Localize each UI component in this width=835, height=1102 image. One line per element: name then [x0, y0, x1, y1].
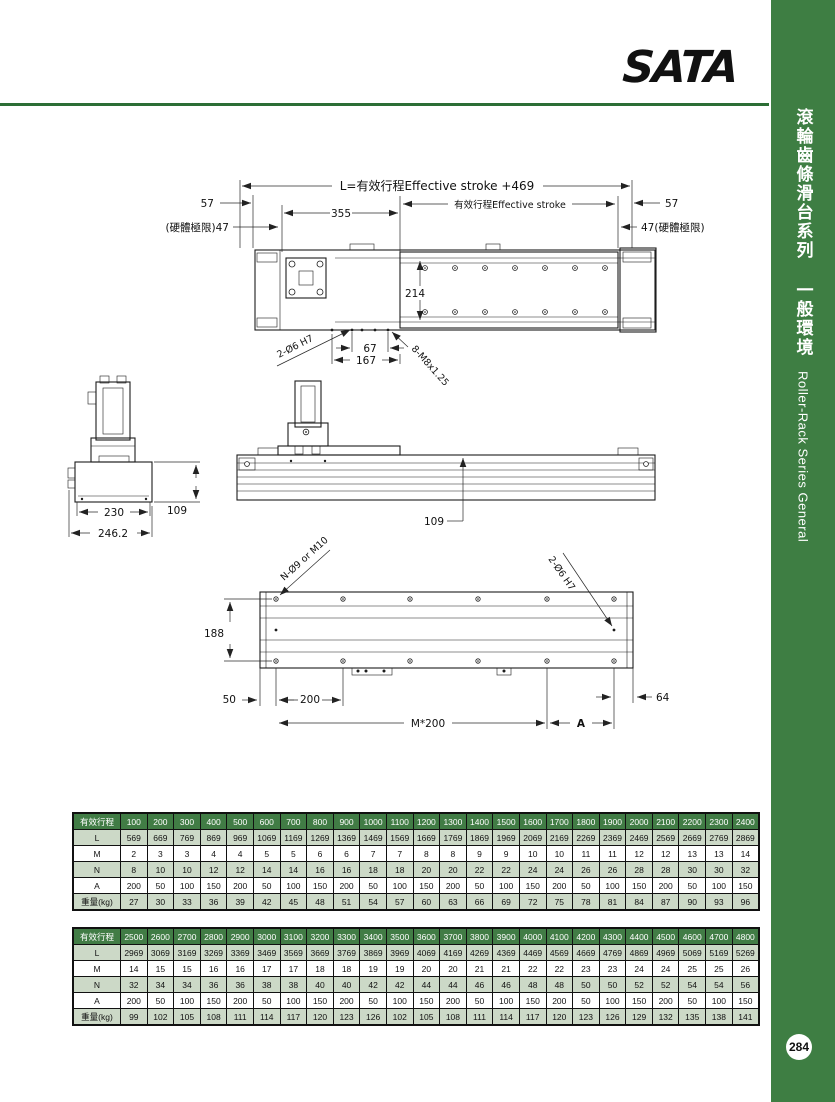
- stroke-header-cell: 600: [253, 813, 280, 830]
- stroke-header-cell: 1500: [493, 813, 520, 830]
- table-cell: 4769: [599, 945, 626, 961]
- table-cell: 12: [652, 846, 679, 862]
- table-cell: 72: [519, 894, 546, 911]
- table-cell: 38: [253, 977, 280, 993]
- table-cell: 90: [679, 894, 706, 911]
- table-cell: 9: [466, 846, 493, 862]
- sata-logo-text: SATA: [621, 42, 739, 93]
- table-cell: 21: [493, 961, 520, 977]
- table-cell: 10: [147, 862, 174, 878]
- stroke-header-cell: 1800: [573, 813, 600, 830]
- table-cell: 6: [307, 846, 334, 862]
- stroke-header-cell: 2200: [679, 813, 706, 830]
- table-cell: 123: [573, 1009, 600, 1026]
- table-cell: 200: [652, 993, 679, 1009]
- table-cell: 46: [493, 977, 520, 993]
- table-cell: 50: [360, 878, 387, 894]
- table-cell: 8: [440, 846, 467, 862]
- table-cell: 50: [573, 977, 600, 993]
- table-cell: 4169: [440, 945, 467, 961]
- table-cell: 150: [200, 993, 227, 1009]
- table-row: L569669769869969106911691269136914691569…: [73, 830, 759, 846]
- stroke-header-cell: 3100: [280, 928, 307, 945]
- table-cell: 3269: [200, 945, 227, 961]
- dim-label-109-side: 109: [424, 516, 444, 528]
- table-cell: 150: [732, 993, 759, 1009]
- table-cell: 24: [546, 862, 573, 878]
- table-cell: 150: [519, 993, 546, 1009]
- table-cell: 100: [280, 878, 307, 894]
- table-cell: 3169: [174, 945, 201, 961]
- table-cell: 5169: [706, 945, 733, 961]
- table-cell: 50: [679, 878, 706, 894]
- table-cell: 40: [307, 977, 334, 993]
- table-cell: 102: [147, 1009, 174, 1026]
- table-cell: 17: [253, 961, 280, 977]
- row-label: N: [73, 862, 121, 878]
- stroke-header-cell: 2400: [732, 813, 759, 830]
- table-cell: 108: [440, 1009, 467, 1026]
- table-cell: 24: [519, 862, 546, 878]
- dim-label-64: 64: [656, 692, 670, 704]
- table-cell: 2069: [519, 830, 546, 846]
- table-row: 有效行程100200300400500600700800900100011001…: [73, 813, 759, 830]
- table-cell: 22: [466, 862, 493, 878]
- sidebar-title-gap: [802, 357, 803, 371]
- table-cell: 2369: [599, 830, 626, 846]
- label-mount-holes: N-Ø9 or M10: [279, 535, 331, 583]
- table-cell: 42: [386, 977, 413, 993]
- table-cell: 22: [493, 862, 520, 878]
- stroke-header-cell: 500: [227, 813, 254, 830]
- table-cell: 1069: [253, 830, 280, 846]
- table-cell: 2969: [121, 945, 148, 961]
- table-row: A200501001502005010015020050100150200501…: [73, 878, 759, 894]
- table-cell: 200: [227, 878, 254, 894]
- table-cell: 8: [121, 862, 148, 878]
- row-label: A: [73, 878, 121, 894]
- stroke-header-cell: 1300: [440, 813, 467, 830]
- row-label: 重量(kg): [73, 1009, 121, 1026]
- table-cell: 117: [519, 1009, 546, 1026]
- stroke-header-cell: 1200: [413, 813, 440, 830]
- table-cell: 40: [333, 977, 360, 993]
- table-cell: 30: [147, 894, 174, 911]
- table-cell: 24: [626, 961, 653, 977]
- table-cell: 30: [706, 862, 733, 878]
- dim-label-214: 214: [405, 288, 425, 300]
- table-cell: 5: [253, 846, 280, 862]
- table-cell: 50: [253, 878, 280, 894]
- table-cell: 50: [679, 993, 706, 1009]
- table-cell: 3569: [280, 945, 307, 961]
- table-cell: 150: [307, 878, 334, 894]
- table-cell: 150: [307, 993, 334, 1009]
- table-cell: 33: [174, 894, 201, 911]
- table-cell: 114: [253, 1009, 280, 1026]
- table-cell: 23: [573, 961, 600, 977]
- table-cell: 20: [413, 862, 440, 878]
- dim-label-effective-stroke: 有效行程Effective stroke: [454, 199, 566, 211]
- table-cell: 16: [227, 961, 254, 977]
- label-pin-holes-plan: 2-Ø6 H7: [275, 333, 315, 361]
- table-cell: 27: [121, 894, 148, 911]
- table-cell: 11: [599, 846, 626, 862]
- table-cell: 150: [200, 878, 227, 894]
- table-cell: 93: [706, 894, 733, 911]
- table-cell: 42: [360, 977, 387, 993]
- table-cell: 200: [440, 878, 467, 894]
- stroke-header-cell: 2700: [174, 928, 201, 945]
- table-cell: 117: [280, 1009, 307, 1026]
- stroke-header-cell: 2600: [147, 928, 174, 945]
- table-cell: 87: [652, 894, 679, 911]
- table-cell: 75: [546, 894, 573, 911]
- table-cell: 46: [466, 977, 493, 993]
- table-cell: 111: [227, 1009, 254, 1026]
- table-cell: 200: [333, 878, 360, 894]
- table-cell: 4469: [519, 945, 546, 961]
- table-cell: 3: [147, 846, 174, 862]
- stroke-header-cell: 1100: [386, 813, 413, 830]
- table-row: A200501001502005010015020050100150200501…: [73, 993, 759, 1009]
- table-row: M233445566778899101011111212131314: [73, 846, 759, 862]
- table-cell: 99: [121, 1009, 148, 1026]
- table-cell: 52: [652, 977, 679, 993]
- table-cell: 12: [626, 846, 653, 862]
- table-cell: 150: [732, 878, 759, 894]
- stroke-header-cell: 300: [174, 813, 201, 830]
- table-cell: 141: [732, 1009, 759, 1026]
- table-cell: 200: [440, 993, 467, 1009]
- table-cell: 32: [732, 862, 759, 878]
- table-cell: 18: [360, 862, 387, 878]
- dim-label-167: 167: [356, 355, 376, 367]
- table-cell: 12: [227, 862, 254, 878]
- stroke-header-cell: 3900: [493, 928, 520, 945]
- table-cell: 1269: [307, 830, 334, 846]
- table-cell: 52: [626, 977, 653, 993]
- table-cell: 57: [386, 894, 413, 911]
- table-cell: 50: [573, 878, 600, 894]
- table-cell: 19: [386, 961, 413, 977]
- row-label: L: [73, 945, 121, 961]
- table-row: 重量(kg)9910210510811111411712012312610210…: [73, 1009, 759, 1026]
- stroke-header-cell: 200: [147, 813, 174, 830]
- table-cell: 25: [706, 961, 733, 977]
- table-cell: 81: [599, 894, 626, 911]
- page-number-badge: 284: [786, 1034, 812, 1060]
- table-cell: 569: [121, 830, 148, 846]
- table-cell: 6: [333, 846, 360, 862]
- stroke-header-cell: 2500: [121, 928, 148, 945]
- table-cell: 969: [227, 830, 254, 846]
- table-cell: 1669: [413, 830, 440, 846]
- dim-label-246: 246.2: [98, 528, 128, 540]
- dim-label-50: 50: [223, 694, 236, 706]
- stroke-header-cell: 4400: [626, 928, 653, 945]
- table-cell: 4569: [546, 945, 573, 961]
- table-cell: 100: [493, 878, 520, 894]
- table-cell: 105: [174, 1009, 201, 1026]
- table-cell: 1769: [440, 830, 467, 846]
- table-cell: 16: [200, 961, 227, 977]
- table-cell: 1569: [386, 830, 413, 846]
- table-cell: 50: [253, 993, 280, 1009]
- table-cell: 50: [599, 977, 626, 993]
- stroke-header-cell: 1600: [519, 813, 546, 830]
- stroke-header-cell: 4000: [519, 928, 546, 945]
- table-cell: 45: [280, 894, 307, 911]
- table-cell: 66: [466, 894, 493, 911]
- catalog-page: SATA 滾輪齒條滑台系列 一般環境Roller-Rack Series Gen…: [0, 0, 835, 1102]
- table-cell: 50: [147, 878, 174, 894]
- table-cell: 769: [174, 830, 201, 846]
- stroke-header-cell: 3400: [360, 928, 387, 945]
- table-cell: 56: [732, 977, 759, 993]
- table-cell: 13: [679, 846, 706, 862]
- dim-label-200: 200: [300, 694, 320, 706]
- dim-label-overall-length: L=有效行程Effective stroke +469: [340, 178, 535, 193]
- stroke-header-cell: 800: [307, 813, 334, 830]
- stroke-table-100-2400: 有效行程100200300400500600700800900100011001…: [72, 812, 760, 911]
- table-cell: 18: [386, 862, 413, 878]
- table-cell: 20: [440, 961, 467, 977]
- table-cell: 28: [652, 862, 679, 878]
- stroke-table-2500-4800: 有效行程250026002700280029003000310032003300…: [72, 927, 760, 1026]
- table-cell: 69: [493, 894, 520, 911]
- table-cell: 150: [413, 878, 440, 894]
- table-cell: 4869: [626, 945, 653, 961]
- stroke-header-cell: 3500: [386, 928, 413, 945]
- dim-label-355: 355: [331, 208, 351, 220]
- table-cell: 26: [732, 961, 759, 977]
- table-cell: 50: [466, 993, 493, 1009]
- table-cell: 28: [626, 862, 653, 878]
- table-cell: 100: [706, 878, 733, 894]
- table-cell: 150: [626, 993, 653, 1009]
- table-cell: 3969: [386, 945, 413, 961]
- table-cell: 100: [174, 993, 201, 1009]
- sata-logo: SATA: [612, 36, 752, 96]
- table-cell: 1169: [280, 830, 307, 846]
- table-cell: 3769: [333, 945, 360, 961]
- table-cell: 4: [227, 846, 254, 862]
- stroke-header-cell: 100: [121, 813, 148, 830]
- stroke-header-cell: 4100: [546, 928, 573, 945]
- table-cell: 22: [546, 961, 573, 977]
- table-cell: 20: [440, 862, 467, 878]
- table-cell: 10: [519, 846, 546, 862]
- table-cell: 84: [626, 894, 653, 911]
- table-cell: 2469: [626, 830, 653, 846]
- table-cell: 150: [519, 878, 546, 894]
- table-cell: 4369: [493, 945, 520, 961]
- table-cell: 3: [174, 846, 201, 862]
- table-cell: 100: [493, 993, 520, 1009]
- table-cell: 50: [466, 878, 493, 894]
- table-cell: 10: [546, 846, 573, 862]
- series-sidebar: 滾輪齒條滑台系列 一般環境Roller-Rack Series General …: [771, 0, 835, 1102]
- end-view-drawing: 230 246.2 109: [68, 376, 200, 540]
- table-cell: 4969: [652, 945, 679, 961]
- header-divider-line: [0, 103, 769, 106]
- stroke-header-cell: 1900: [599, 813, 626, 830]
- table-cell: 7: [360, 846, 387, 862]
- table-cell: 1469: [360, 830, 387, 846]
- page-number: 284: [789, 1040, 809, 1054]
- row-label: M: [73, 961, 121, 977]
- dim-label-109-end: 109: [167, 505, 187, 517]
- table-cell: 4669: [573, 945, 600, 961]
- table-cell: 669: [147, 830, 174, 846]
- table-cell: 25: [679, 961, 706, 977]
- table-cell: 126: [360, 1009, 387, 1026]
- table-cell: 44: [440, 977, 467, 993]
- table-row: 重量(kg)2730333639424548515457606366697275…: [73, 894, 759, 911]
- table-cell: 96: [732, 894, 759, 911]
- sidebar-title: 滾輪齒條滑台系列 一般環境Roller-Rack Series General: [791, 108, 816, 542]
- table-cell: 36: [200, 894, 227, 911]
- table-cell: 17: [280, 961, 307, 977]
- table-cell: 21: [466, 961, 493, 977]
- table-cell: 26: [599, 862, 626, 878]
- table-cell: 126: [599, 1009, 626, 1026]
- stroke-header-cell: 3600: [413, 928, 440, 945]
- table-cell: 23: [599, 961, 626, 977]
- table-cell: 4269: [466, 945, 493, 961]
- table-cell: 200: [546, 993, 573, 1009]
- table-cell: 12: [200, 862, 227, 878]
- table-cell: 150: [626, 878, 653, 894]
- table-cell: 3069: [147, 945, 174, 961]
- table-cell: 100: [386, 993, 413, 1009]
- dim-label-m200: M*200: [411, 718, 445, 730]
- table-cell: 78: [573, 894, 600, 911]
- stroke-header-cell: 3200: [307, 928, 334, 945]
- dim-label-47-left: (硬體極限)47: [165, 221, 229, 234]
- bottom-view-drawing: 188 50 200 M*200 A: [204, 535, 670, 730]
- stroke-header-cell: 4600: [679, 928, 706, 945]
- table-cell: 2669: [679, 830, 706, 846]
- table-cell: 2: [121, 846, 148, 862]
- table-cell: 5269: [732, 945, 759, 961]
- row-label: A: [73, 993, 121, 1009]
- table-cell: 60: [413, 894, 440, 911]
- stroke-header-cell: 1400: [466, 813, 493, 830]
- table-cell: 16: [333, 862, 360, 878]
- sidebar-title-zh: 滾輪齒條滑台系列 一般環境: [794, 108, 813, 357]
- table-cell: 3369: [227, 945, 254, 961]
- stroke-header-cell: 3300: [333, 928, 360, 945]
- table-cell: 14: [732, 846, 759, 862]
- stroke-header-cell: 400: [200, 813, 227, 830]
- stroke-header-cell: 2000: [626, 813, 653, 830]
- table-cell: 108: [200, 1009, 227, 1026]
- table-cell: 1869: [466, 830, 493, 846]
- table-cell: 100: [706, 993, 733, 1009]
- stroke-header-cell: 3000: [253, 928, 280, 945]
- table-cell: 3669: [307, 945, 334, 961]
- stroke-header-label: 有效行程: [73, 813, 121, 830]
- table-cell: 54: [679, 977, 706, 993]
- table-cell: 14: [280, 862, 307, 878]
- table-cell: 3469: [253, 945, 280, 961]
- row-label: L: [73, 830, 121, 846]
- table-cell: 38: [280, 977, 307, 993]
- table-cell: 32: [121, 977, 148, 993]
- table-cell: 869: [200, 830, 227, 846]
- table-cell: 39: [227, 894, 254, 911]
- stroke-header-cell: 4500: [652, 928, 679, 945]
- table-cell: 135: [679, 1009, 706, 1026]
- dim-label-67: 67: [363, 343, 376, 355]
- table-cell: 15: [147, 961, 174, 977]
- table-row: N323434363638384040424244444646484850505…: [73, 977, 759, 993]
- base-mount-holes: [274, 597, 616, 663]
- stroke-header-cell: 2900: [227, 928, 254, 945]
- table-cell: 129: [626, 1009, 653, 1026]
- table-cell: 123: [333, 1009, 360, 1026]
- table-row: M141515161617171818191920202121222223232…: [73, 961, 759, 977]
- stroke-header-cell: 900: [333, 813, 360, 830]
- table-cell: 2869: [732, 830, 759, 846]
- table-cell: 18: [333, 961, 360, 977]
- table-cell: 16: [307, 862, 334, 878]
- dim-label-57-left: 57: [201, 198, 214, 210]
- table-cell: 100: [599, 878, 626, 894]
- table-cell: 34: [147, 977, 174, 993]
- table-cell: 4069: [413, 945, 440, 961]
- stroke-header-cell: 1000: [360, 813, 387, 830]
- stroke-header-cell: 1700: [546, 813, 573, 830]
- dim-label-230: 230: [104, 507, 124, 519]
- table-cell: 14: [121, 961, 148, 977]
- table-cell: 102: [386, 1009, 413, 1026]
- table-cell: 150: [413, 993, 440, 1009]
- table-cell: 34: [174, 977, 201, 993]
- table-cell: 63: [440, 894, 467, 911]
- table-cell: 200: [652, 878, 679, 894]
- label-threads-plan: 8-M8x1.25: [409, 344, 451, 389]
- table-cell: 36: [200, 977, 227, 993]
- table-cell: 120: [307, 1009, 334, 1026]
- technical-drawings: L=有效行程Effective stroke +469 57 355 有效行程E…: [0, 120, 772, 800]
- stroke-header-cell: 2800: [200, 928, 227, 945]
- table-cell: 18: [307, 961, 334, 977]
- carriage-bolt-holes: [423, 266, 608, 315]
- table-cell: 44: [413, 977, 440, 993]
- table-cell: 50: [360, 993, 387, 1009]
- table-cell: 20: [413, 961, 440, 977]
- table-cell: 1969: [493, 830, 520, 846]
- stroke-header-cell: 700: [280, 813, 307, 830]
- table-cell: 50: [573, 993, 600, 1009]
- table-cell: 42: [253, 894, 280, 911]
- table-cell: 13: [706, 846, 733, 862]
- table-cell: 5069: [679, 945, 706, 961]
- dim-label-a: A: [577, 718, 586, 730]
- table-row: N810101212141416161818202022222424262628…: [73, 862, 759, 878]
- table-cell: 132: [652, 1009, 679, 1026]
- stroke-header-label: 有效行程: [73, 928, 121, 945]
- table-cell: 54: [360, 894, 387, 911]
- table-cell: 15: [174, 961, 201, 977]
- table-cell: 1369: [333, 830, 360, 846]
- table-cell: 9: [493, 846, 520, 862]
- table-cell: 120: [546, 1009, 573, 1026]
- table-cell: 19: [360, 961, 387, 977]
